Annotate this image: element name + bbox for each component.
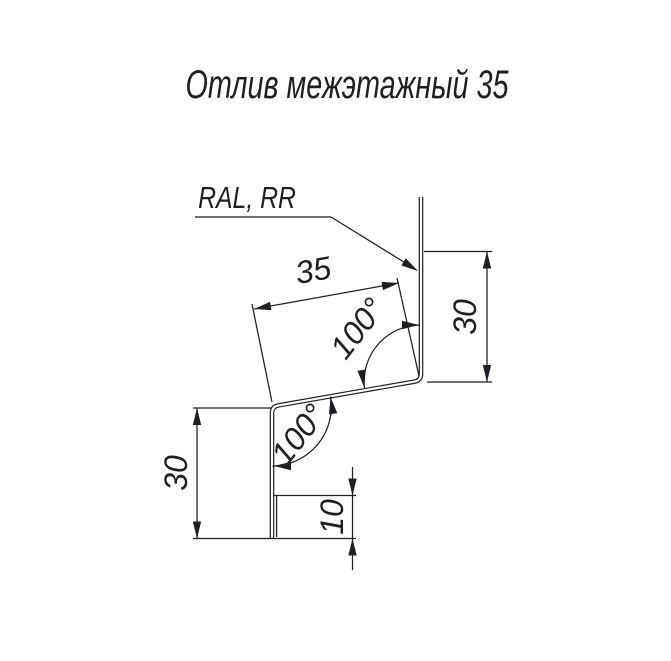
extension-line — [252, 304, 272, 402]
dim-angle-upper-label: 100° — [323, 291, 392, 365]
dimension-hem: 10 — [274, 467, 357, 570]
dim-left-flange-label: 30 — [158, 455, 194, 491]
dim-arrowhead — [253, 302, 271, 313]
dim-hem-label: 10 — [314, 499, 350, 535]
angle-arrowhead — [402, 321, 419, 329]
dim-arrowhead — [483, 252, 491, 269]
profile-section-line — [272, 197, 421, 538]
dim-arrowhead — [348, 539, 356, 556]
profile-outline — [272, 197, 421, 538]
leader-arrowhead — [401, 258, 420, 274]
dim-arrowhead — [483, 365, 491, 382]
page-title: Отлив межэтажный 35 — [186, 62, 509, 107]
dim-arrowhead — [193, 408, 201, 425]
dim-arrowhead — [348, 479, 356, 496]
dim-slant-width-label: 35 — [292, 249, 334, 291]
dimension-angle-upper: 100° — [323, 291, 420, 388]
profile-section-core — [272, 197, 421, 538]
drawing-canvas: RAL, RR 35 100° — [0, 0, 671, 661]
profile-drawing: RAL, RR 35 100° — [0, 0, 671, 661]
angle-arrowhead — [357, 370, 368, 388]
dimension-right-flange: 30 — [424, 252, 492, 383]
dim-arrowhead — [193, 522, 201, 539]
material-label: RAL, RR — [198, 180, 296, 214]
leader-line — [331, 217, 416, 270]
dim-right-flange-label: 30 — [447, 299, 483, 335]
